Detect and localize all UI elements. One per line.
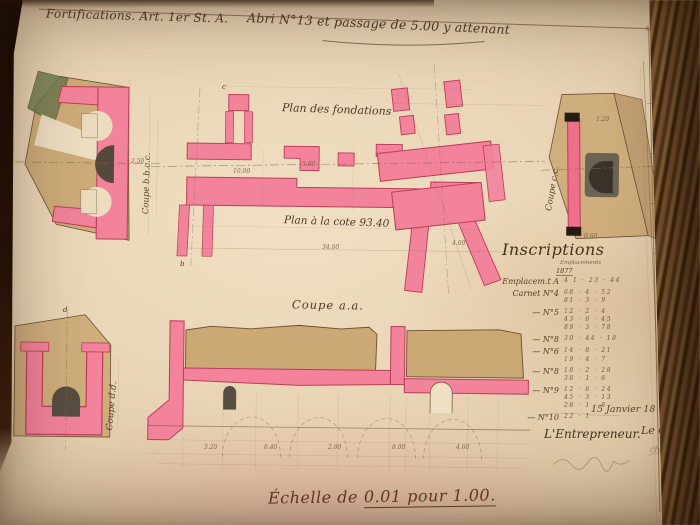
row-label: Carnet N°4 (497, 289, 559, 298)
inscriptions-table: Emplacem.t A 4 1 · 23 · 44 Carnet N°4 68… (497, 277, 677, 425)
dimension-label: 4.00 (452, 240, 465, 247)
row-values: 68 · 4 · 52 81 · 3 · 9 (564, 289, 612, 305)
title-underline (323, 40, 485, 46)
entrepreneur-label: L'Entrepreneur. (544, 427, 641, 441)
inscriptions-row: Emplacem.t A 4 1 · 23 · 44 (497, 277, 677, 286)
inscriptions-row: — N°5 12 · 2 · 4 43 · 6 · 45 89 · 3 · 78 (497, 308, 677, 332)
row-values: 22 · 1 (564, 413, 591, 421)
entrepreneur-signature (553, 457, 629, 472)
axis-letter: b (180, 260, 184, 268)
row-label: — N°9 (497, 386, 559, 395)
row-values: 18 · 2 · 28 38 · 1 · 6 (564, 367, 612, 383)
inscriptions-row: — N°6 14 · 8 · 21 19 · 4 · 7 (497, 347, 677, 363)
inscriptions-row: — N°8 18 · 2 · 28 38 · 1 · 6 (497, 367, 677, 383)
row-label: — N°6 (497, 347, 559, 356)
dimension-label: 8.00 (392, 444, 405, 451)
pink-wall-band (566, 119, 581, 231)
scale-caption: Échelle de0.01 pour 1.00. (268, 485, 496, 507)
dimension-label: 2.00 (328, 444, 341, 451)
dimension-label: 6.40 (264, 444, 277, 451)
doorway-dark (223, 386, 236, 410)
figure-coupe-dd (14, 309, 120, 451)
row-label: — N°8 (497, 367, 559, 376)
dimension-label: 2.50 (131, 158, 144, 165)
dimension-label: 3.20 (204, 444, 217, 451)
row-values: 12 · 2 · 4 43 · 6 · 45 89 · 3 · 78 (564, 308, 612, 332)
dimension-label: 34.60 (322, 244, 339, 251)
inscriptions-column-header: Emplacements (560, 260, 601, 266)
axis-letter: c (222, 83, 226, 91)
dimension-label: 10.00 (233, 168, 250, 175)
row-label: Emplacem.t A (497, 277, 559, 286)
dimension-label: 0.60 (584, 233, 597, 240)
inscriptions-row: Carnet N°4 68 · 4 · 52 81 · 3 · 9 (497, 289, 677, 305)
axis-letter: d (63, 306, 67, 314)
date-line: 15 Janvier 18 (591, 404, 655, 415)
inscriptions-row: — N°8 30 · 44 · 18 (497, 335, 677, 344)
row-values: 4 1 · 23 · 44 (564, 277, 621, 285)
row-label: — N°10 (497, 413, 559, 422)
scale-prefix: Échelle de (268, 487, 358, 507)
row-label: — N°8 (497, 335, 559, 344)
dimension-label: 4.60 (456, 444, 469, 451)
inscriptions-heading: Inscriptions (502, 240, 605, 259)
scale-value: 0.01 pour 1.00. (364, 485, 496, 508)
inscriptions-year: 1877 (556, 267, 573, 276)
photograph-of-fortification-drawing: Fortifications. Art. 1er St. A. Abri N°1… (0, 0, 700, 525)
figure-plan-fondations (149, 62, 547, 298)
top-edge-shadow (0, 0, 434, 8)
dimension-label: 5.00 (302, 161, 315, 168)
row-values: 30 · 44 · 18 (564, 335, 618, 343)
row-values: 14 · 8 · 21 19 · 4 · 7 (564, 347, 612, 363)
dimension-label: 1.20 (596, 116, 609, 123)
coupe-aa-label: Coupe a.a. (292, 297, 364, 312)
row-label: — N°5 (497, 308, 559, 317)
